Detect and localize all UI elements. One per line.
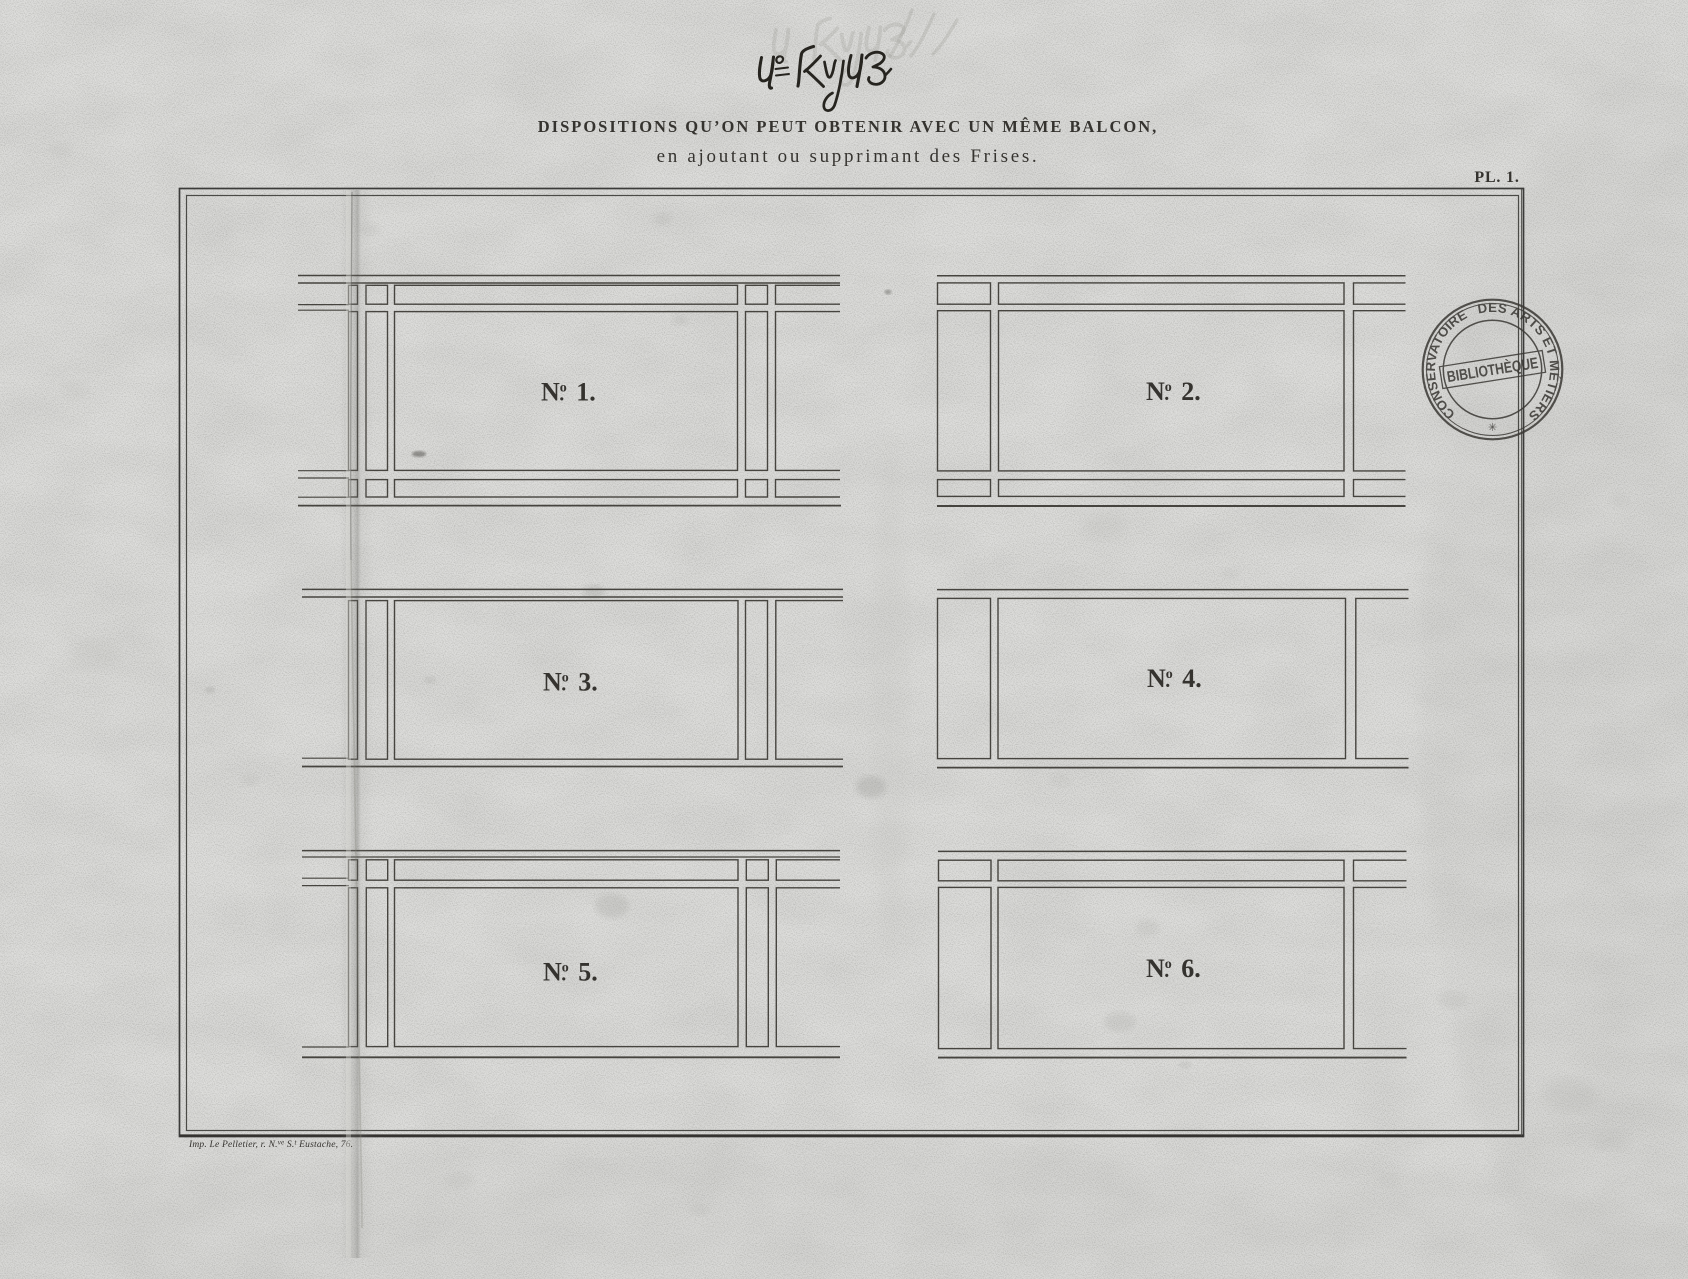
svg-text:✳: ✳ <box>1488 422 1497 434</box>
svg-text:Imp. Le Pelletier, r. N.ve S.t: Imp. Le Pelletier, r. N.ve S.t Eustache,… <box>188 1139 353 1151</box>
svg-text:en ajoutant ou supprimant des: en ajoutant ou supprimant des Frises. <box>657 146 1040 167</box>
svg-text:DISPOSITIONS QU’ON PEUT OBTENI: DISPOSITIONS QU’ON PEUT OBTENIR AVEC UN … <box>538 117 1158 136</box>
svg-text:PL. 1.: PL. 1. <box>1474 169 1519 186</box>
